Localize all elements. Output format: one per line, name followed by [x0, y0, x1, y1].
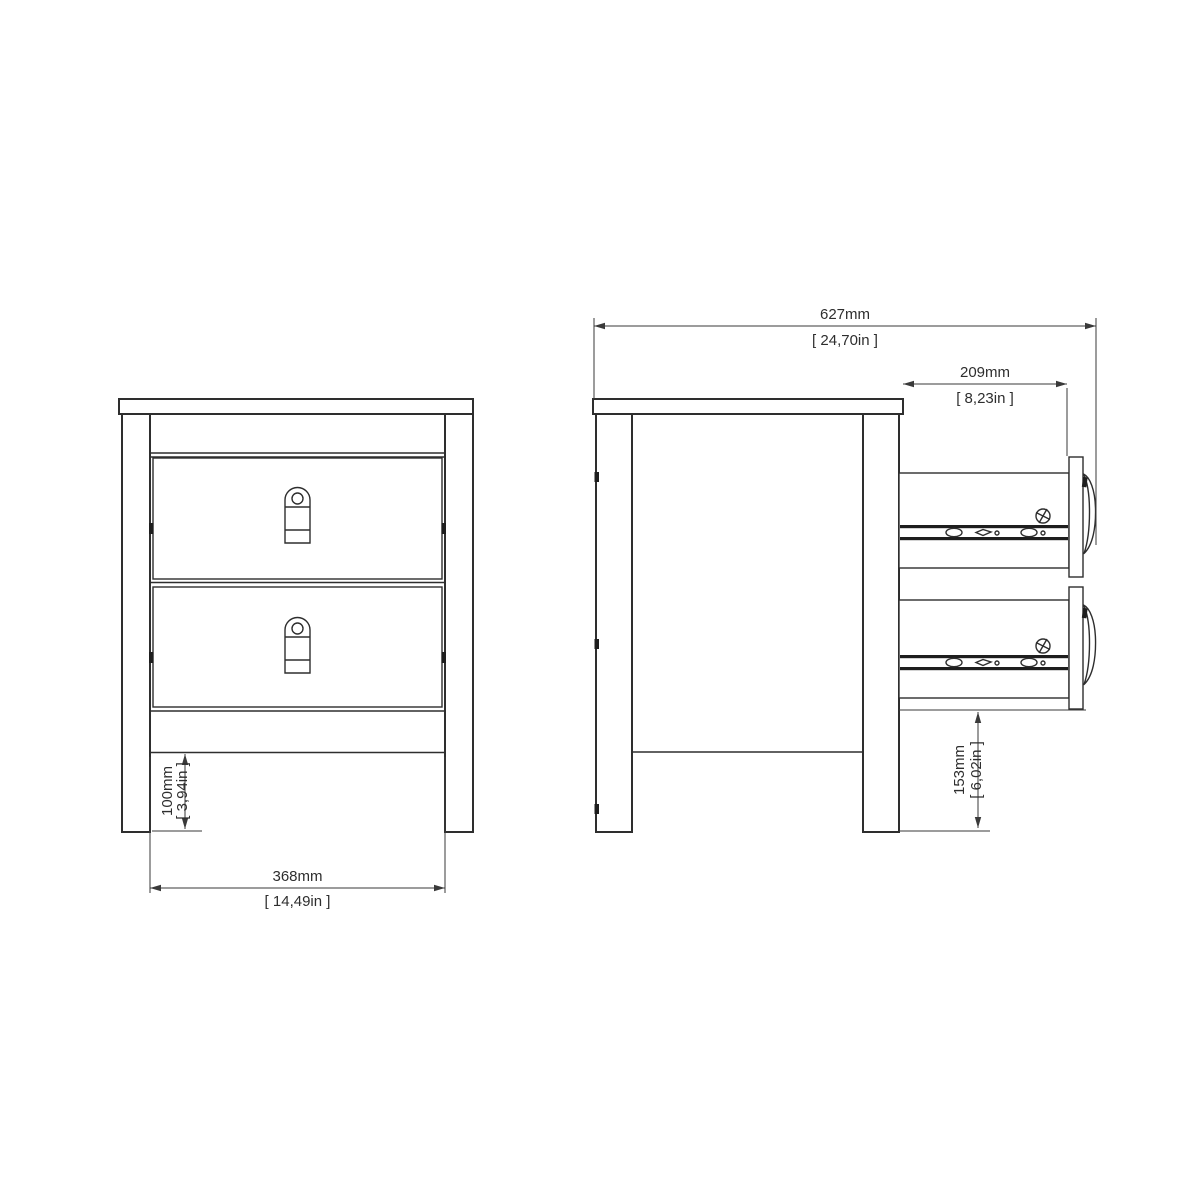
- side-view: 627mm [ 24,70in ] 209mm [ 8,23in ] 153mm…: [593, 306, 1096, 832]
- dowel-tick-icon: [595, 639, 600, 649]
- dowel-tick-icon: [442, 652, 447, 663]
- side-top-board: [593, 399, 903, 414]
- drawer1-handle-icon: [285, 488, 310, 544]
- front-view: 100mm [ 3,94in ] 368mm [ 14,49in ]: [119, 399, 473, 910]
- dowel-tick-icon: [595, 472, 600, 482]
- dowel-tick-icon: [149, 523, 154, 534]
- handle-rivet-icon: [292, 493, 303, 504]
- side-front-leg: [863, 414, 899, 832]
- dim-clearance-height-imperial: [ 6,02in ]: [968, 741, 985, 799]
- drawer2-front-panel: [1069, 587, 1083, 709]
- dim-overall-depth-imperial: [ 24,70in ]: [812, 332, 878, 349]
- technical-drawing-canvas: 100mm [ 3,94in ] 368mm [ 14,49in ]: [0, 0, 1200, 1200]
- dowel-tick-icon: [442, 523, 447, 534]
- side-back-leg: [596, 414, 632, 832]
- side-drawer-1: [899, 457, 1096, 577]
- dim-plinth-height-imperial: [ 3,94in ]: [174, 762, 191, 820]
- furniture-dimension-diagram: 100mm [ 3,94in ] 368mm [ 14,49in ]: [0, 0, 1200, 1200]
- drawer2-handle-icon: [285, 618, 310, 674]
- dim-plinth-height: 100mm [ 3,94in ]: [152, 754, 202, 831]
- front-left-leg: [122, 414, 150, 832]
- drawer2-rail-bottom-band: [900, 667, 1068, 670]
- drawer2-rail-top-band: [900, 655, 1068, 658]
- dim-internal-width: 368mm [ 14,49in ]: [150, 757, 445, 910]
- front-right-leg: [445, 414, 473, 832]
- dowel-tick-icon: [149, 652, 154, 663]
- handle-rivet-icon: [292, 623, 303, 634]
- drawer1-rail-top-band: [900, 525, 1068, 528]
- drawer2-strap-pull-icon: [1082, 605, 1096, 685]
- drawer1-strap-pull-icon: [1082, 474, 1096, 554]
- dim-clearance-height: 153mm [ 6,02in ]: [899, 710, 1086, 831]
- dim-clearance-height-metric: 153mm: [951, 745, 968, 795]
- dim-overall-depth-metric: 627mm: [820, 306, 870, 323]
- dim-drawer-extension-imperial: [ 8,23in ]: [956, 390, 1014, 407]
- drawer1-rail-bottom-band: [900, 537, 1068, 540]
- cam-screw-icon: [1036, 639, 1050, 653]
- dim-drawer-extension: 209mm [ 8,23in ]: [903, 364, 1067, 456]
- drawer1-front-panel: [1069, 457, 1083, 577]
- cam-screw-icon: [1036, 509, 1050, 523]
- dowel-tick-icon: [595, 804, 600, 814]
- dim-internal-width-imperial: [ 14,49in ]: [265, 893, 331, 910]
- side-drawer-2: [899, 587, 1096, 709]
- dim-drawer-extension-metric: 209mm: [960, 364, 1010, 381]
- front-top-board: [119, 399, 473, 414]
- dim-internal-width-metric: 368mm: [272, 868, 322, 885]
